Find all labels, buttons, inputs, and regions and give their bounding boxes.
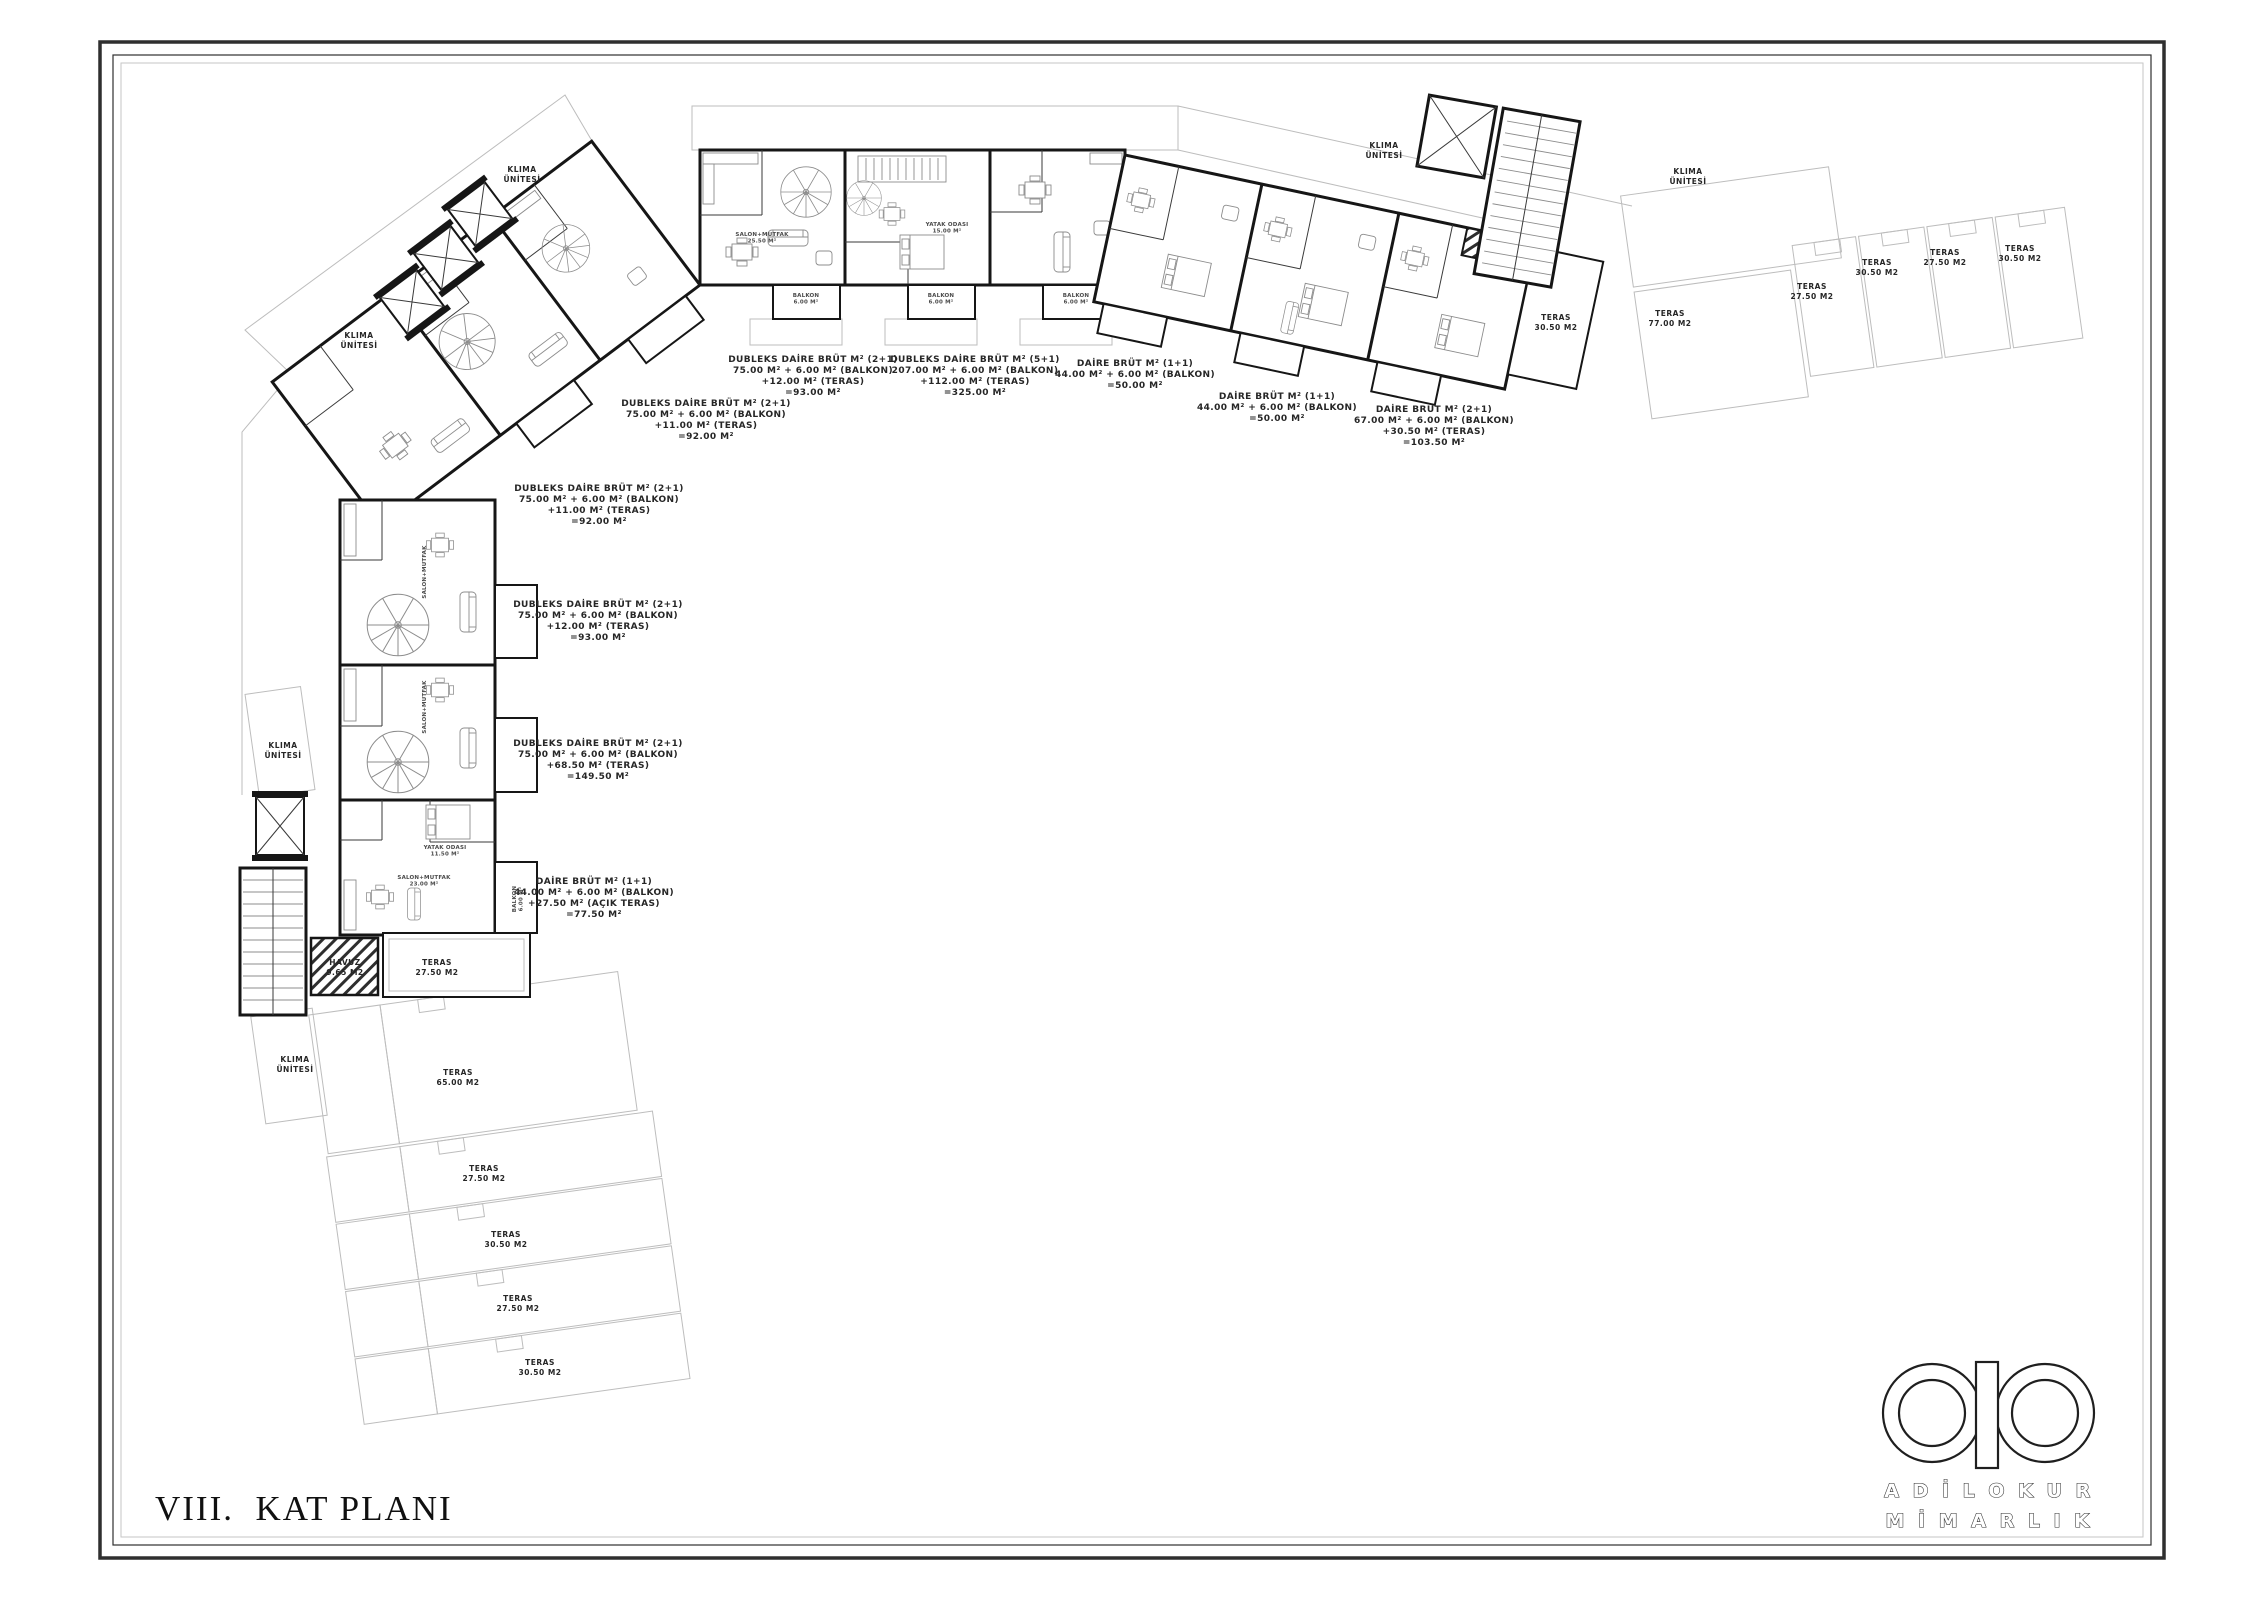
room-label: BALKON6.00 M² [793, 293, 820, 306]
teras-labels: TERAS77.00 M2 TERAS27.50 M2 TERAS30.50 M… [326, 244, 2041, 1377]
area-label: DAİRE BRÜT M² (2+1)67.00 M² + 6.00 M² (B… [1354, 404, 1514, 448]
klima-label: KLIMAÜNİTESİ [1365, 141, 1402, 160]
page-title: VIII. KAT PLANI [155, 1489, 453, 1528]
pool-label: HAVUZ9.65 M2 [326, 958, 363, 977]
klima-label: KLIMAÜNİTESİ [264, 741, 301, 760]
room-label: BALKON6.00 M² [1063, 293, 1090, 306]
teras-label: TERAS65.00 M2 [436, 1068, 479, 1087]
floor-plan-svg: DUBLEKS DAİRE BRÜT M² (2+1)75.00 M² + 6.… [0, 0, 2264, 1600]
area-label: DUBLEKS DAİRE BRÜT M² (2+1)75.00 M² + 6.… [513, 738, 683, 782]
klima-label: KLIMAÜNİTESİ [276, 1055, 313, 1074]
stair-core-bottom-left [240, 868, 306, 1015]
drawing-sheet: DUBLEKS DAİRE BRÜT M² (2+1)75.00 M² + 6.… [0, 0, 2264, 1600]
teras-label: TERAS27.50 M2 [1790, 282, 1833, 301]
room-label: BALKON6.00 M² [512, 886, 525, 913]
logo-circle-o-outer [1996, 1364, 2094, 1462]
room-label: BALKON6.00 M² [928, 293, 955, 306]
area-label: DAİRE BRÜT M² (1+1)44.00 M² + 6.00 M² (B… [1197, 391, 1357, 424]
teras-label: TERAS30.50 M2 [518, 1358, 561, 1377]
area-label: DUBLEKS DAİRE BRÜT M² (2+1)75.00 M² + 6.… [514, 483, 684, 527]
teras-label: TERAS30.50 M2 [484, 1230, 527, 1249]
area-label: DUBLEKS DAİRE BRÜT M² (2+1)75.00 M² + 6.… [621, 398, 791, 442]
teras-label: TERAS77.00 M2 [1648, 309, 1691, 328]
area-label: DAİRE BRÜT M² (1+1)44.00 M² + 6.00 M² (B… [1055, 358, 1215, 391]
area-label: DUBLEKS DAİRE BRÜT M² (2+1)75.00 M² + 6.… [513, 599, 683, 643]
elevator-core-bottom-left [252, 791, 308, 861]
teras-label: TERAS27.50 M2 [496, 1294, 539, 1313]
room-label: SALON+MUTFAK [422, 680, 428, 734]
teras-label: TERAS27.50 M2 [1923, 248, 1966, 267]
teras-label: TERAS30.50 M2 [1855, 258, 1898, 277]
logo-circle-a-outer [1883, 1364, 1981, 1462]
klima-label: KLIMAÜNİTESİ [1669, 167, 1706, 186]
teras-label: TERAS30.50 M2 [1998, 244, 2041, 263]
terrace-grid-bottom-left [307, 970, 690, 1425]
room-label: SALON+MUTFAK [422, 545, 428, 599]
terrace-box-bottom [383, 933, 530, 997]
logo-stem [1976, 1362, 1998, 1468]
logo-name-line1: A D İ L O K U R [1884, 1478, 2093, 1502]
klima-label: KLIMAÜNİTESİ [503, 165, 540, 184]
area-label: DUBLEKS DAİRE BRÜT M² (2+1)75.00 M² + 6.… [728, 354, 898, 398]
teras-label: TERAS27.50 M2 [462, 1164, 505, 1183]
logo-name-line2: M İ M A R L I K [1886, 1508, 2093, 1532]
logo-circle-a-inner [1899, 1380, 1965, 1446]
left-wing [340, 500, 537, 935]
architect-logo: A D İ L O K U R M İ M A R L I K [1883, 1362, 2094, 1532]
area-labels: DUBLEKS DAİRE BRÜT M² (2+1)75.00 M² + 6.… [513, 354, 1514, 920]
klima-label: KLIMAÜNİTESİ [340, 331, 377, 350]
area-label: DUBLEKS DAİRE BRÜT M² (5+1)207.00 M² + 6… [890, 354, 1060, 398]
balcony-left-1 [495, 585, 537, 658]
logo-circle-o-inner [2012, 1380, 2078, 1446]
